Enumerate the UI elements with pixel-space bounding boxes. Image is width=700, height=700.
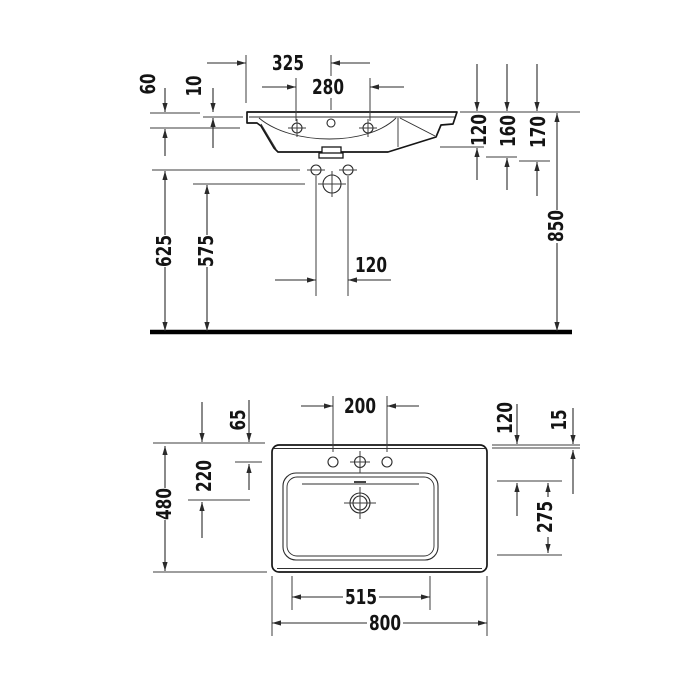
dim-front-rim-to-drain-bottom: 170 — [526, 116, 550, 148]
dim-front-rim-thickness: 10 — [182, 76, 206, 97]
dim-front-rim-height: 850 — [544, 210, 568, 242]
front-basin-outline — [247, 112, 457, 158]
dim-front-mount-hole-spacing: 120 — [355, 253, 387, 277]
dim-plan-overall-depth: 480 — [152, 488, 176, 520]
spec-sheet: 325 280 60 10 120 160 170 850 625 575 12… — [0, 0, 700, 700]
overflow-hole — [327, 119, 335, 127]
front-view: 325 280 60 10 120 160 170 850 625 575 12… — [136, 51, 580, 332]
dim-plan-basin-width: 515 — [345, 585, 377, 609]
dim-plan-back-to-drain: 220 — [192, 460, 216, 492]
dim-front-mount-holes-to-floor: 625 — [152, 235, 176, 267]
dim-front-rim-to-basin-bottom: 120 — [467, 114, 491, 146]
front-dimension-arrows — [165, 63, 557, 331]
drain-fitting-flange — [319, 153, 343, 158]
plan-drain — [344, 487, 376, 519]
dim-front-siphon-to-floor: 575 — [194, 235, 218, 267]
plan-basin-outline — [272, 445, 487, 572]
dim-front-hole-spacing: 280 — [312, 75, 344, 99]
dim-plan-back-rim-width: 15 — [547, 410, 571, 431]
technical-drawing: 325 280 60 10 120 160 170 850 625 575 12… — [0, 0, 700, 700]
dim-front-left-edge-to-center: 325 — [272, 51, 304, 75]
dim-front-rim-to-drain: 160 — [496, 115, 520, 147]
front-faucet-holes — [288, 119, 377, 137]
dim-plan-faucet-hole-spacing: 200 — [344, 394, 376, 418]
dim-plan-basin-depth: 275 — [533, 501, 557, 533]
dim-front-rim-to-hole-drop: 60 — [136, 74, 160, 95]
front-mounting-holes — [307, 165, 357, 197]
dim-plan-overall-width: 800 — [369, 611, 401, 635]
plan-faucet-holes — [328, 451, 392, 473]
dim-plan-back-to-faucet-holes: 65 — [226, 410, 250, 431]
plan-view: 200 65 220 480 120 15 275 515 800 — [152, 394, 580, 636]
dim-plan-back-to-basin-front: 120 — [493, 402, 517, 434]
